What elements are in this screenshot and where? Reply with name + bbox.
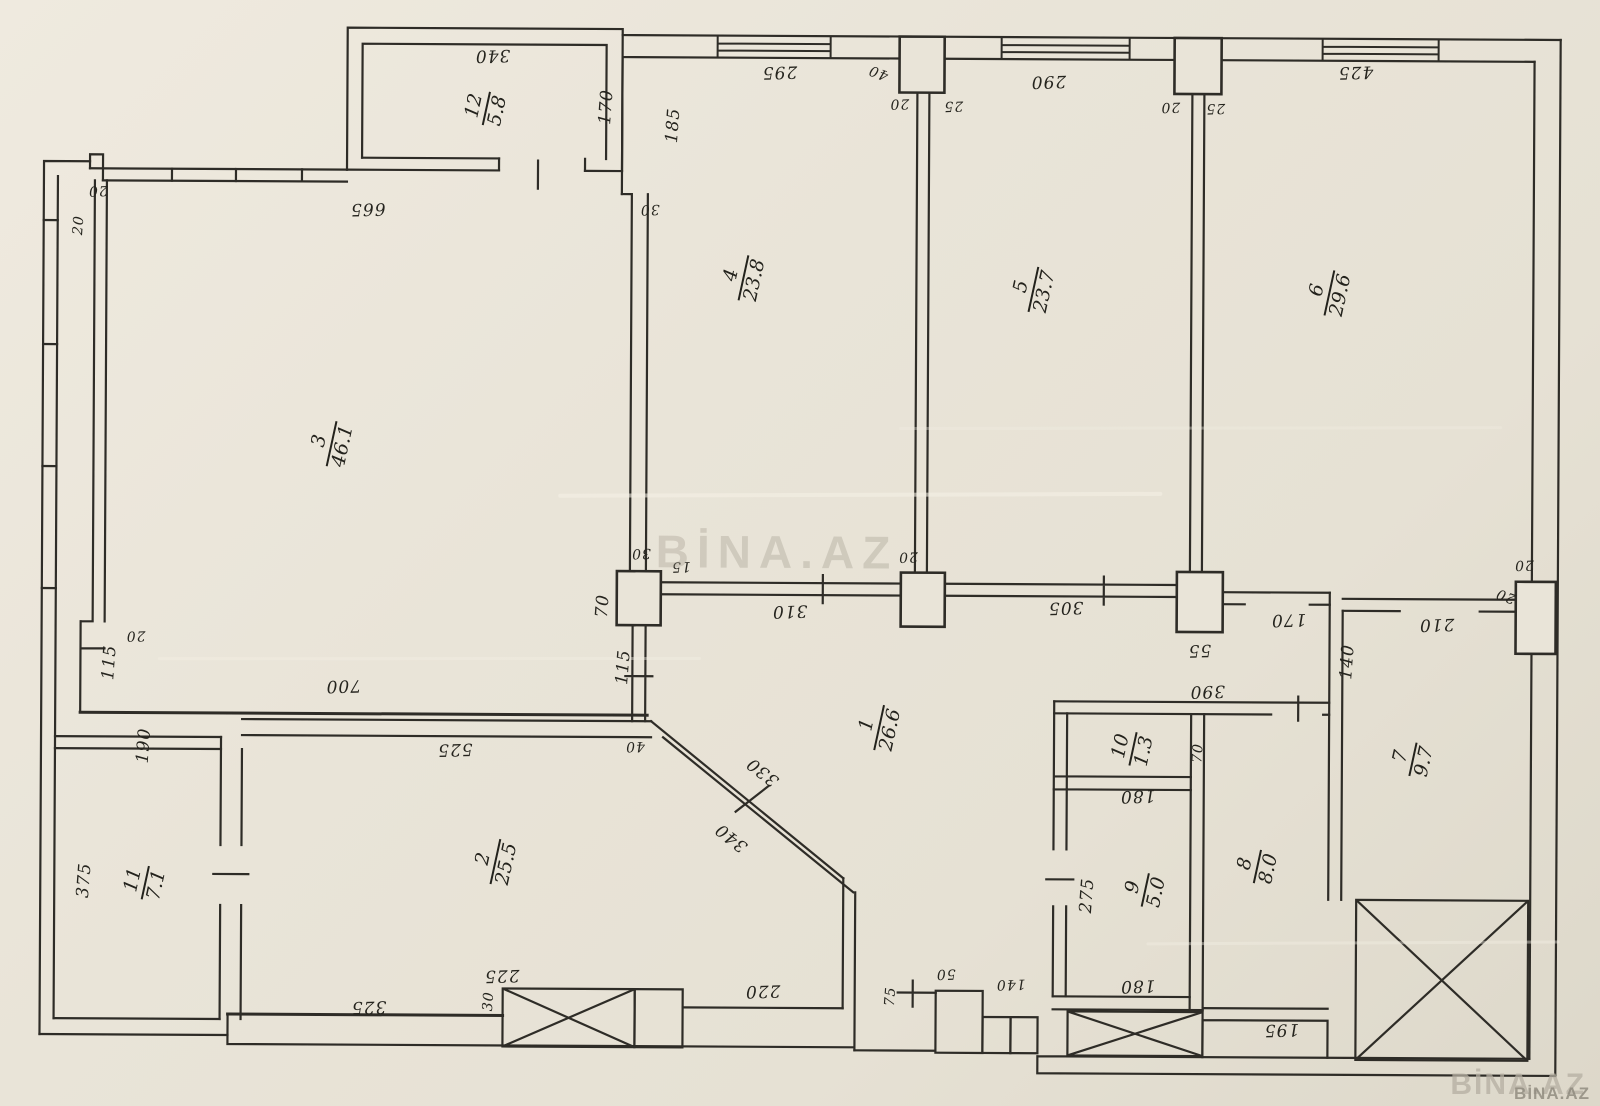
dim-label: 180 <box>1120 785 1156 806</box>
dim-label: 180 <box>1120 975 1156 996</box>
dim-label: 290 <box>1030 71 1066 92</box>
dim-label: 20 <box>70 215 87 236</box>
dim-label: 30 <box>631 545 651 562</box>
dim-label: 25 <box>943 98 963 115</box>
dim-label: 185 <box>662 107 685 144</box>
dim-label: 50 <box>936 965 956 982</box>
dim-label: 20 <box>898 548 918 565</box>
dim-label: 700 <box>325 675 361 696</box>
binaaz-watermark-corner-small: BİNA.AZ <box>1514 1084 1590 1104</box>
dim-label: 170 <box>1271 609 1307 630</box>
dim-label: 115 <box>98 644 121 681</box>
dim-label: 375 <box>73 862 96 899</box>
dim-label: 115 <box>612 649 635 686</box>
dim-label: 20 <box>1514 557 1534 574</box>
dim-label: 70 <box>592 593 614 618</box>
dim-label: 70 <box>1189 743 1206 764</box>
floorplan: 340 170 665 20 20 295 185 30 40 20 25 29… <box>0 0 1600 1106</box>
dim-label: 340 <box>475 45 511 66</box>
dim-label: 20 <box>1160 99 1180 116</box>
scan-artifacts <box>158 421 1561 946</box>
dim-label: 525 <box>437 739 473 760</box>
dim-label: 665 <box>350 198 386 219</box>
dim-label: 20 <box>889 95 909 112</box>
dim-label: 295 <box>762 61 798 82</box>
dim-label: 275 <box>1076 877 1099 914</box>
dim-label: 305 <box>1048 597 1084 618</box>
binaaz-watermark-center: BİNA.AZ <box>656 524 899 579</box>
dim-label: 190 <box>133 727 156 764</box>
dim-label: 30 <box>640 201 660 218</box>
dim-label: 390 <box>1189 681 1225 702</box>
dim-label: 20 <box>125 627 145 644</box>
dim-label: 310 <box>772 600 808 621</box>
dim-label: 195 <box>1263 1019 1299 1040</box>
dim-label: 25 <box>1205 100 1225 117</box>
scanned-floorplan-page: 340 170 665 20 20 295 185 30 40 20 25 29… <box>0 0 1600 1106</box>
dim-label: 225 <box>484 965 520 986</box>
dim-label: 140 <box>996 976 1026 993</box>
dim-label: 20 <box>88 182 108 199</box>
dim-label: 40 <box>625 738 645 755</box>
dim-label: 170 <box>595 89 618 126</box>
dim-label: 210 <box>1419 614 1455 635</box>
dim-label: 425 <box>1338 61 1374 82</box>
dim-label: 140 <box>1336 643 1359 680</box>
dim-label: 30 <box>480 991 497 1012</box>
dim-label: 220 <box>745 980 781 1001</box>
dim-label: 75 <box>882 986 899 1007</box>
dim-label: 325 <box>351 996 387 1017</box>
dim-label: 55 <box>1187 640 1211 661</box>
